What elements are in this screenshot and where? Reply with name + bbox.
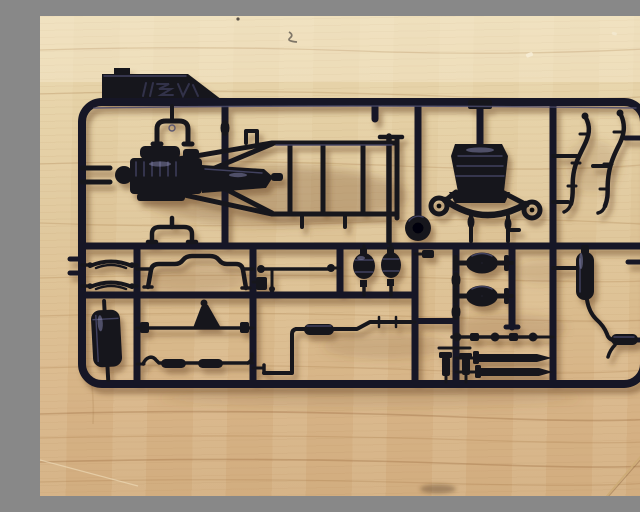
part-hub-drum-2 xyxy=(381,246,401,295)
part-diff-cover-dome xyxy=(405,215,431,241)
bottom-smudge-mark xyxy=(420,485,456,494)
part-leaf-spring-2 xyxy=(82,283,137,290)
part-leaf-spring-1 xyxy=(82,262,137,269)
part-hub-drum-1 xyxy=(353,246,375,295)
part-transfer-case xyxy=(431,144,540,241)
part-tie-rod xyxy=(253,264,340,292)
photo-model-kit-sprue xyxy=(40,16,640,496)
part-track-bar-bracket xyxy=(137,300,253,334)
part-fuel-tank xyxy=(90,300,123,380)
tiny-dot-mark xyxy=(236,17,239,20)
part-muffler-assembly xyxy=(553,245,638,357)
part-front-axle xyxy=(453,253,512,274)
part-torsion-rod-2 xyxy=(456,365,553,378)
diagonal-crease-mark xyxy=(606,401,640,496)
part-rear-axle xyxy=(453,286,512,307)
sprue-illustration xyxy=(40,16,640,496)
part-spring-shackle-upper xyxy=(153,106,192,144)
part-spring-shackle-lower xyxy=(148,218,196,242)
part-bolt-1 xyxy=(439,352,452,382)
